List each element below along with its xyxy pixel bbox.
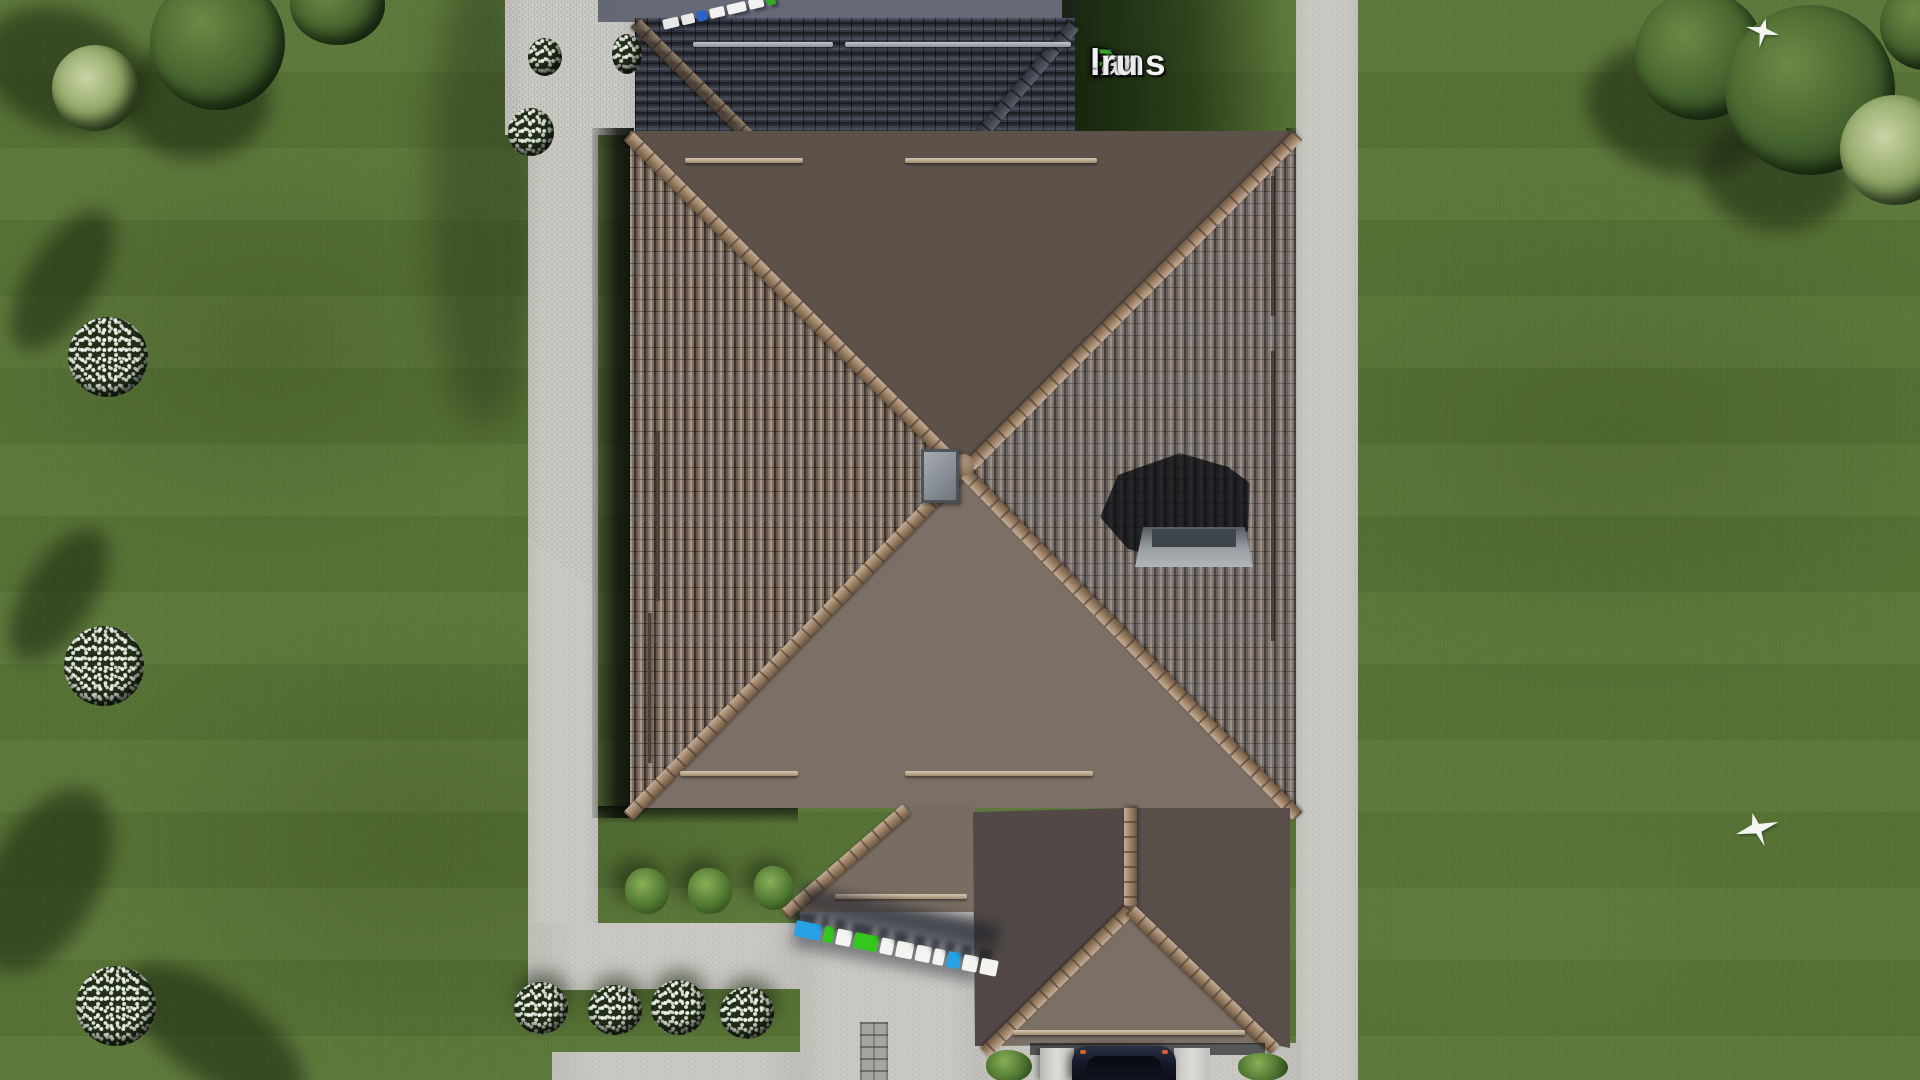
cobble-strip bbox=[860, 1022, 888, 1080]
flower-bush bbox=[651, 980, 706, 1035]
roof-rail bbox=[648, 613, 651, 763]
watermark-letter-block bbox=[879, 937, 895, 955]
watermark-letter-block bbox=[979, 958, 999, 977]
trimmed-bush bbox=[688, 868, 732, 914]
watermark-letter-block bbox=[914, 945, 932, 964]
watermark-letter-block bbox=[895, 941, 915, 960]
car bbox=[1072, 1046, 1176, 1080]
flower-bush bbox=[514, 982, 568, 1034]
car-taillight-right bbox=[1162, 1050, 1168, 1054]
trimmed-bush bbox=[754, 866, 794, 910]
wing-ridge bbox=[697, 26, 993, 34]
bird-icon bbox=[1745, 18, 1779, 48]
garage-post-right bbox=[1174, 1048, 1210, 1080]
aerial-render-canvas: FixPlans.ru bbox=[0, 0, 1920, 1080]
wing-snow-bar bbox=[693, 42, 833, 47]
garage-snow-bar bbox=[1013, 1030, 1245, 1035]
car-taillight-left bbox=[1080, 1050, 1086, 1054]
trimmed-bush bbox=[625, 868, 669, 914]
right-garden-path bbox=[1296, 0, 1358, 1080]
garage-post-left bbox=[1040, 1048, 1074, 1080]
rear-wing-roof bbox=[635, 18, 1075, 131]
white-blossom-tree bbox=[68, 317, 148, 397]
snow-bar bbox=[680, 771, 798, 776]
chimney bbox=[921, 449, 959, 503]
logo-segment: .ru bbox=[1090, 42, 1139, 84]
garage-roof bbox=[973, 808, 1290, 1050]
flower-bush bbox=[508, 108, 554, 156]
driveway-bush-left bbox=[986, 1050, 1032, 1080]
bottom-edge-path bbox=[552, 1052, 802, 1080]
white-blossom-tree bbox=[76, 966, 156, 1046]
snow-bar bbox=[685, 158, 803, 163]
main-roof bbox=[630, 131, 1296, 808]
snow-bar bbox=[905, 158, 1097, 163]
watermark-letter-block bbox=[946, 951, 962, 969]
car-roof-glass bbox=[1086, 1056, 1162, 1080]
flower-bush bbox=[612, 34, 642, 74]
roof-rail bbox=[1271, 176, 1274, 316]
tree bbox=[52, 45, 138, 131]
watermark-letter-block bbox=[822, 926, 835, 944]
eave-shadow-left bbox=[592, 128, 634, 818]
driveway-bush-right bbox=[1238, 1053, 1288, 1080]
flower-bush bbox=[528, 38, 562, 76]
garage-ridge-vertical bbox=[1124, 806, 1137, 906]
bird-icon bbox=[1736, 810, 1780, 850]
flower-bush bbox=[588, 985, 642, 1035]
roof-hatch-inner bbox=[1152, 529, 1236, 547]
watermark-letter-block bbox=[961, 954, 979, 973]
watermark-letter-block bbox=[932, 948, 946, 966]
roof-rail bbox=[1271, 351, 1274, 641]
watermark-letter-block bbox=[835, 928, 853, 947]
snow-bar bbox=[905, 771, 1093, 776]
flower-bush bbox=[720, 987, 774, 1039]
white-blossom-tree bbox=[64, 626, 144, 706]
wing-tiles bbox=[635, 18, 1075, 131]
roof-rail bbox=[656, 431, 659, 601]
wing-snow-bar bbox=[845, 42, 1071, 47]
